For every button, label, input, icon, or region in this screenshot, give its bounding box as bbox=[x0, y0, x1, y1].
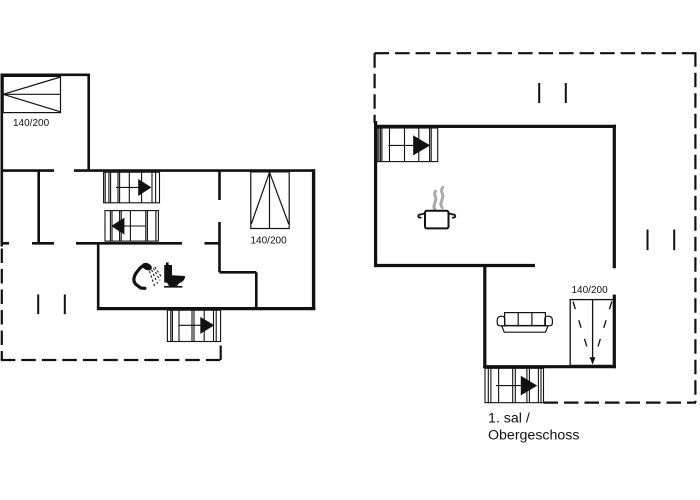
svg-text:140/200: 140/200 bbox=[572, 285, 609, 296]
svg-text:Obergeschoss: Obergeschoss bbox=[488, 428, 579, 444]
svg-text:140/200: 140/200 bbox=[251, 236, 288, 247]
svg-text:140/200: 140/200 bbox=[13, 118, 50, 129]
svg-text:1. sal /: 1. sal / bbox=[488, 411, 530, 427]
